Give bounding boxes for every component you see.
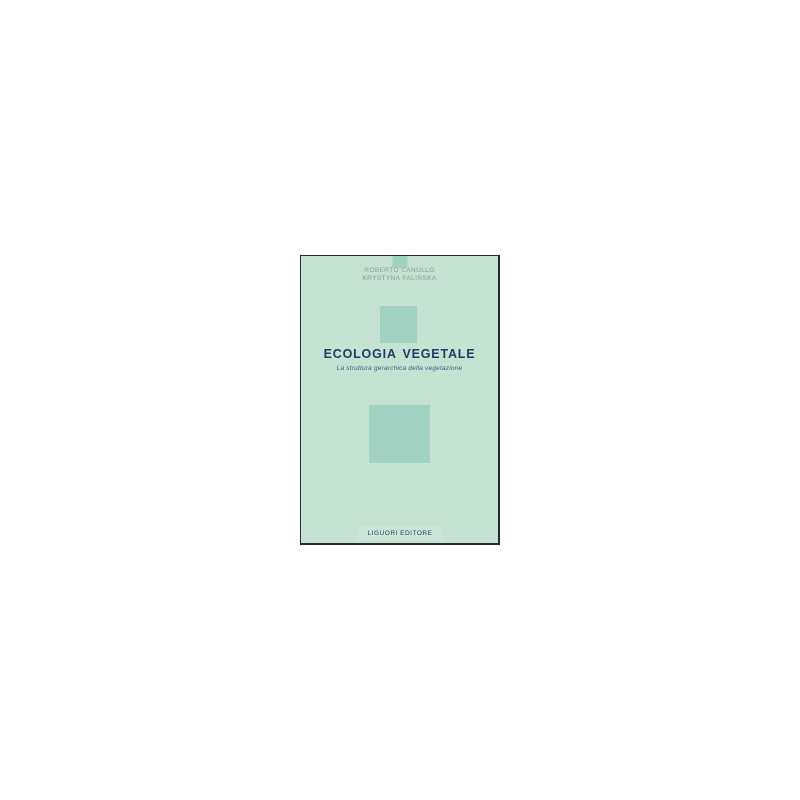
book-subtitle: La struttura gerarchica della vegetazion… [301, 365, 498, 372]
author-line-1: ROBERTO CANULLO [301, 267, 498, 275]
page-background: ROBERTO CANULLO KRYSTYNA FALIŃSKA ECOLOG… [0, 0, 800, 800]
middle-accent-square [380, 306, 417, 343]
author-line-2: KRYSTYNA FALIŃSKA [301, 275, 498, 283]
publisher-band: LIGUORI EDITORE [358, 526, 442, 540]
book-cover: ROBERTO CANULLO KRYSTYNA FALIŃSKA ECOLOG… [300, 255, 500, 545]
large-accent-square [369, 405, 430, 463]
author-names: ROBERTO CANULLO KRYSTYNA FALIŃSKA [301, 267, 498, 282]
publisher-name: LIGUORI EDITORE [368, 530, 433, 537]
book-title: ECOLOGIA VEGETALE [301, 347, 498, 361]
